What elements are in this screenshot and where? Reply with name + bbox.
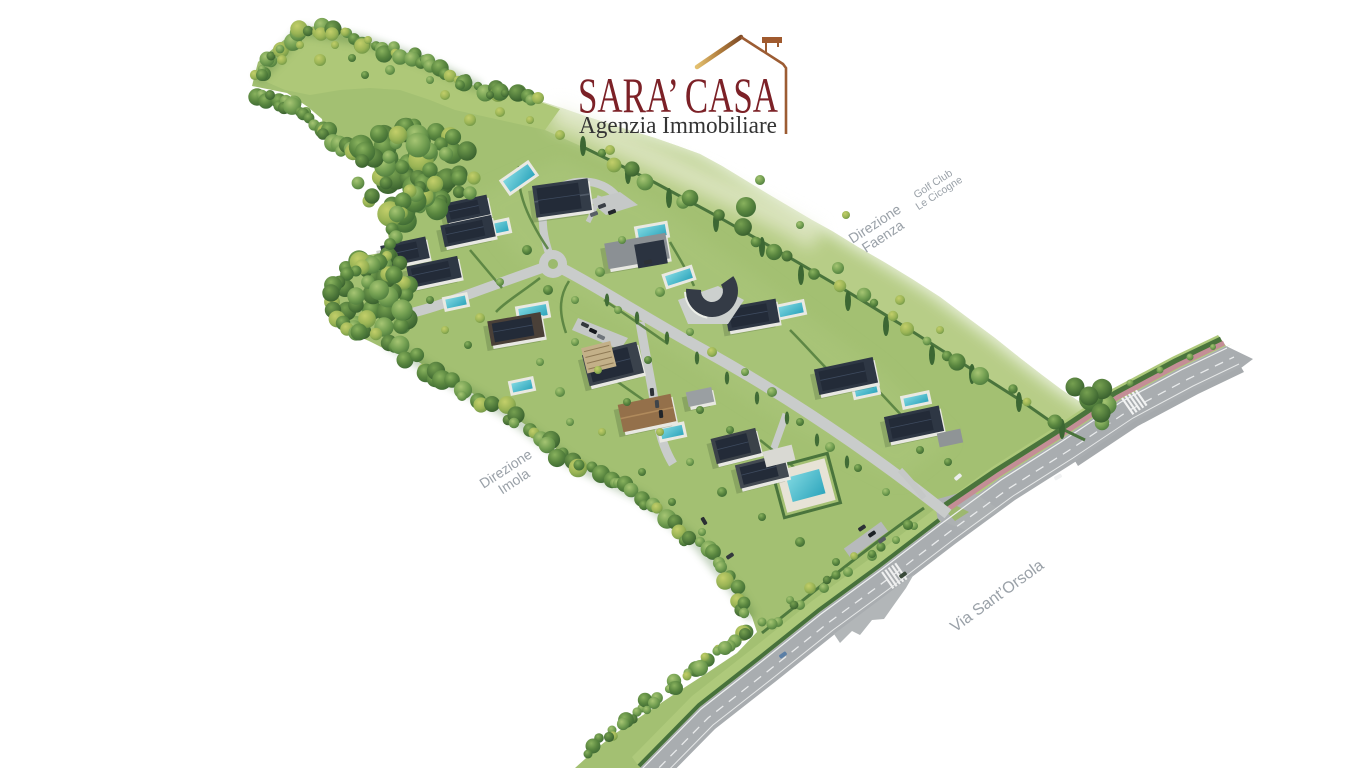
svg-text:Agenzia Immobiliare: Agenzia Immobiliare [579,113,777,139]
svg-text:DirezioneImola: DirezioneImola [476,446,543,504]
svg-text:Golf ClubLe Cicogne: Golf ClubLe Cicogne [908,165,965,213]
svg-text:Via Sant’Orsola: Via Sant’Orsola [948,557,1048,636]
